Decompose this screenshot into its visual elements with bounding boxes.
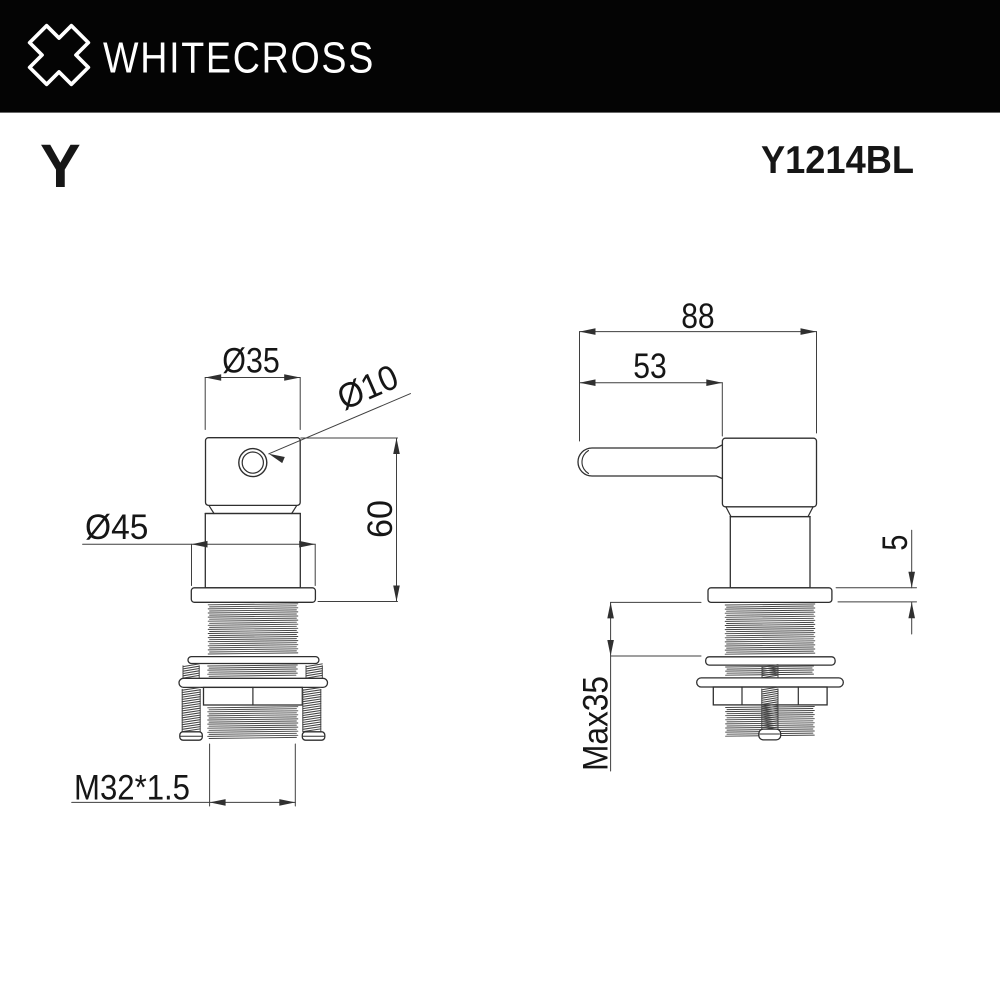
svg-text:88: 88 — [681, 297, 715, 336]
svg-text:5: 5 — [876, 535, 915, 551]
svg-text:53: 53 — [633, 347, 667, 386]
svg-text:Ø35: Ø35 — [222, 342, 279, 381]
svg-text:Y1214BL: Y1214BL — [761, 139, 914, 182]
svg-text:Ø45: Ø45 — [85, 508, 148, 547]
svg-text:Max35: Max35 — [577, 676, 616, 771]
svg-text:60: 60 — [361, 500, 400, 538]
svg-text:WHITECROSS: WHITECROSS — [103, 34, 375, 83]
svg-text:Y: Y — [40, 132, 81, 200]
svg-text:M32*1.5: M32*1.5 — [74, 769, 190, 808]
